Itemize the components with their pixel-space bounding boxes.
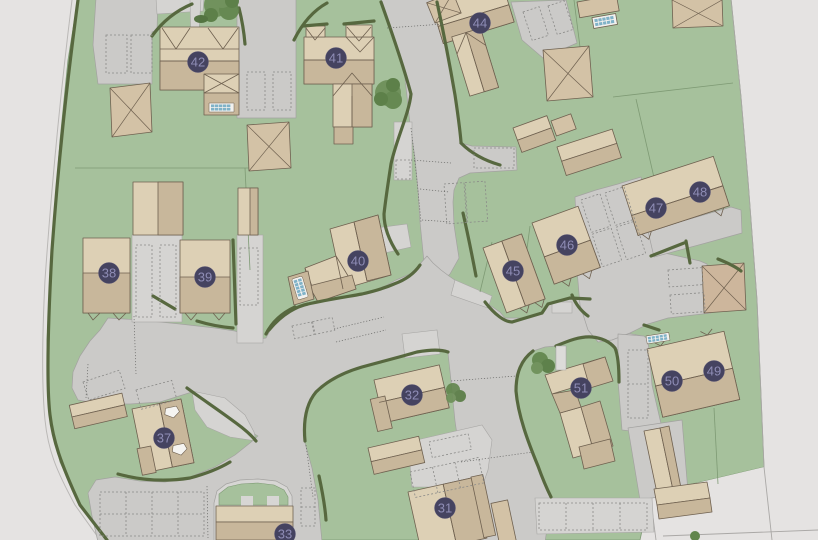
svg-text:50: 50 — [665, 374, 679, 389]
svg-text:45: 45 — [506, 264, 520, 279]
svg-text:51: 51 — [574, 381, 588, 396]
svg-text:48: 48 — [693, 185, 707, 200]
svg-text:37: 37 — [157, 431, 171, 446]
svg-text:39: 39 — [198, 270, 212, 285]
svg-text:46: 46 — [560, 238, 574, 253]
svg-text:42: 42 — [191, 55, 205, 70]
svg-text:32: 32 — [405, 388, 419, 403]
svg-text:44: 44 — [473, 16, 487, 31]
svg-text:49: 49 — [707, 364, 721, 379]
svg-text:33: 33 — [278, 527, 292, 540]
svg-text:38: 38 — [102, 266, 116, 281]
svg-text:40: 40 — [351, 254, 365, 269]
svg-text:47: 47 — [649, 201, 663, 216]
svg-text:31: 31 — [438, 501, 452, 516]
svg-text:41: 41 — [329, 51, 343, 66]
